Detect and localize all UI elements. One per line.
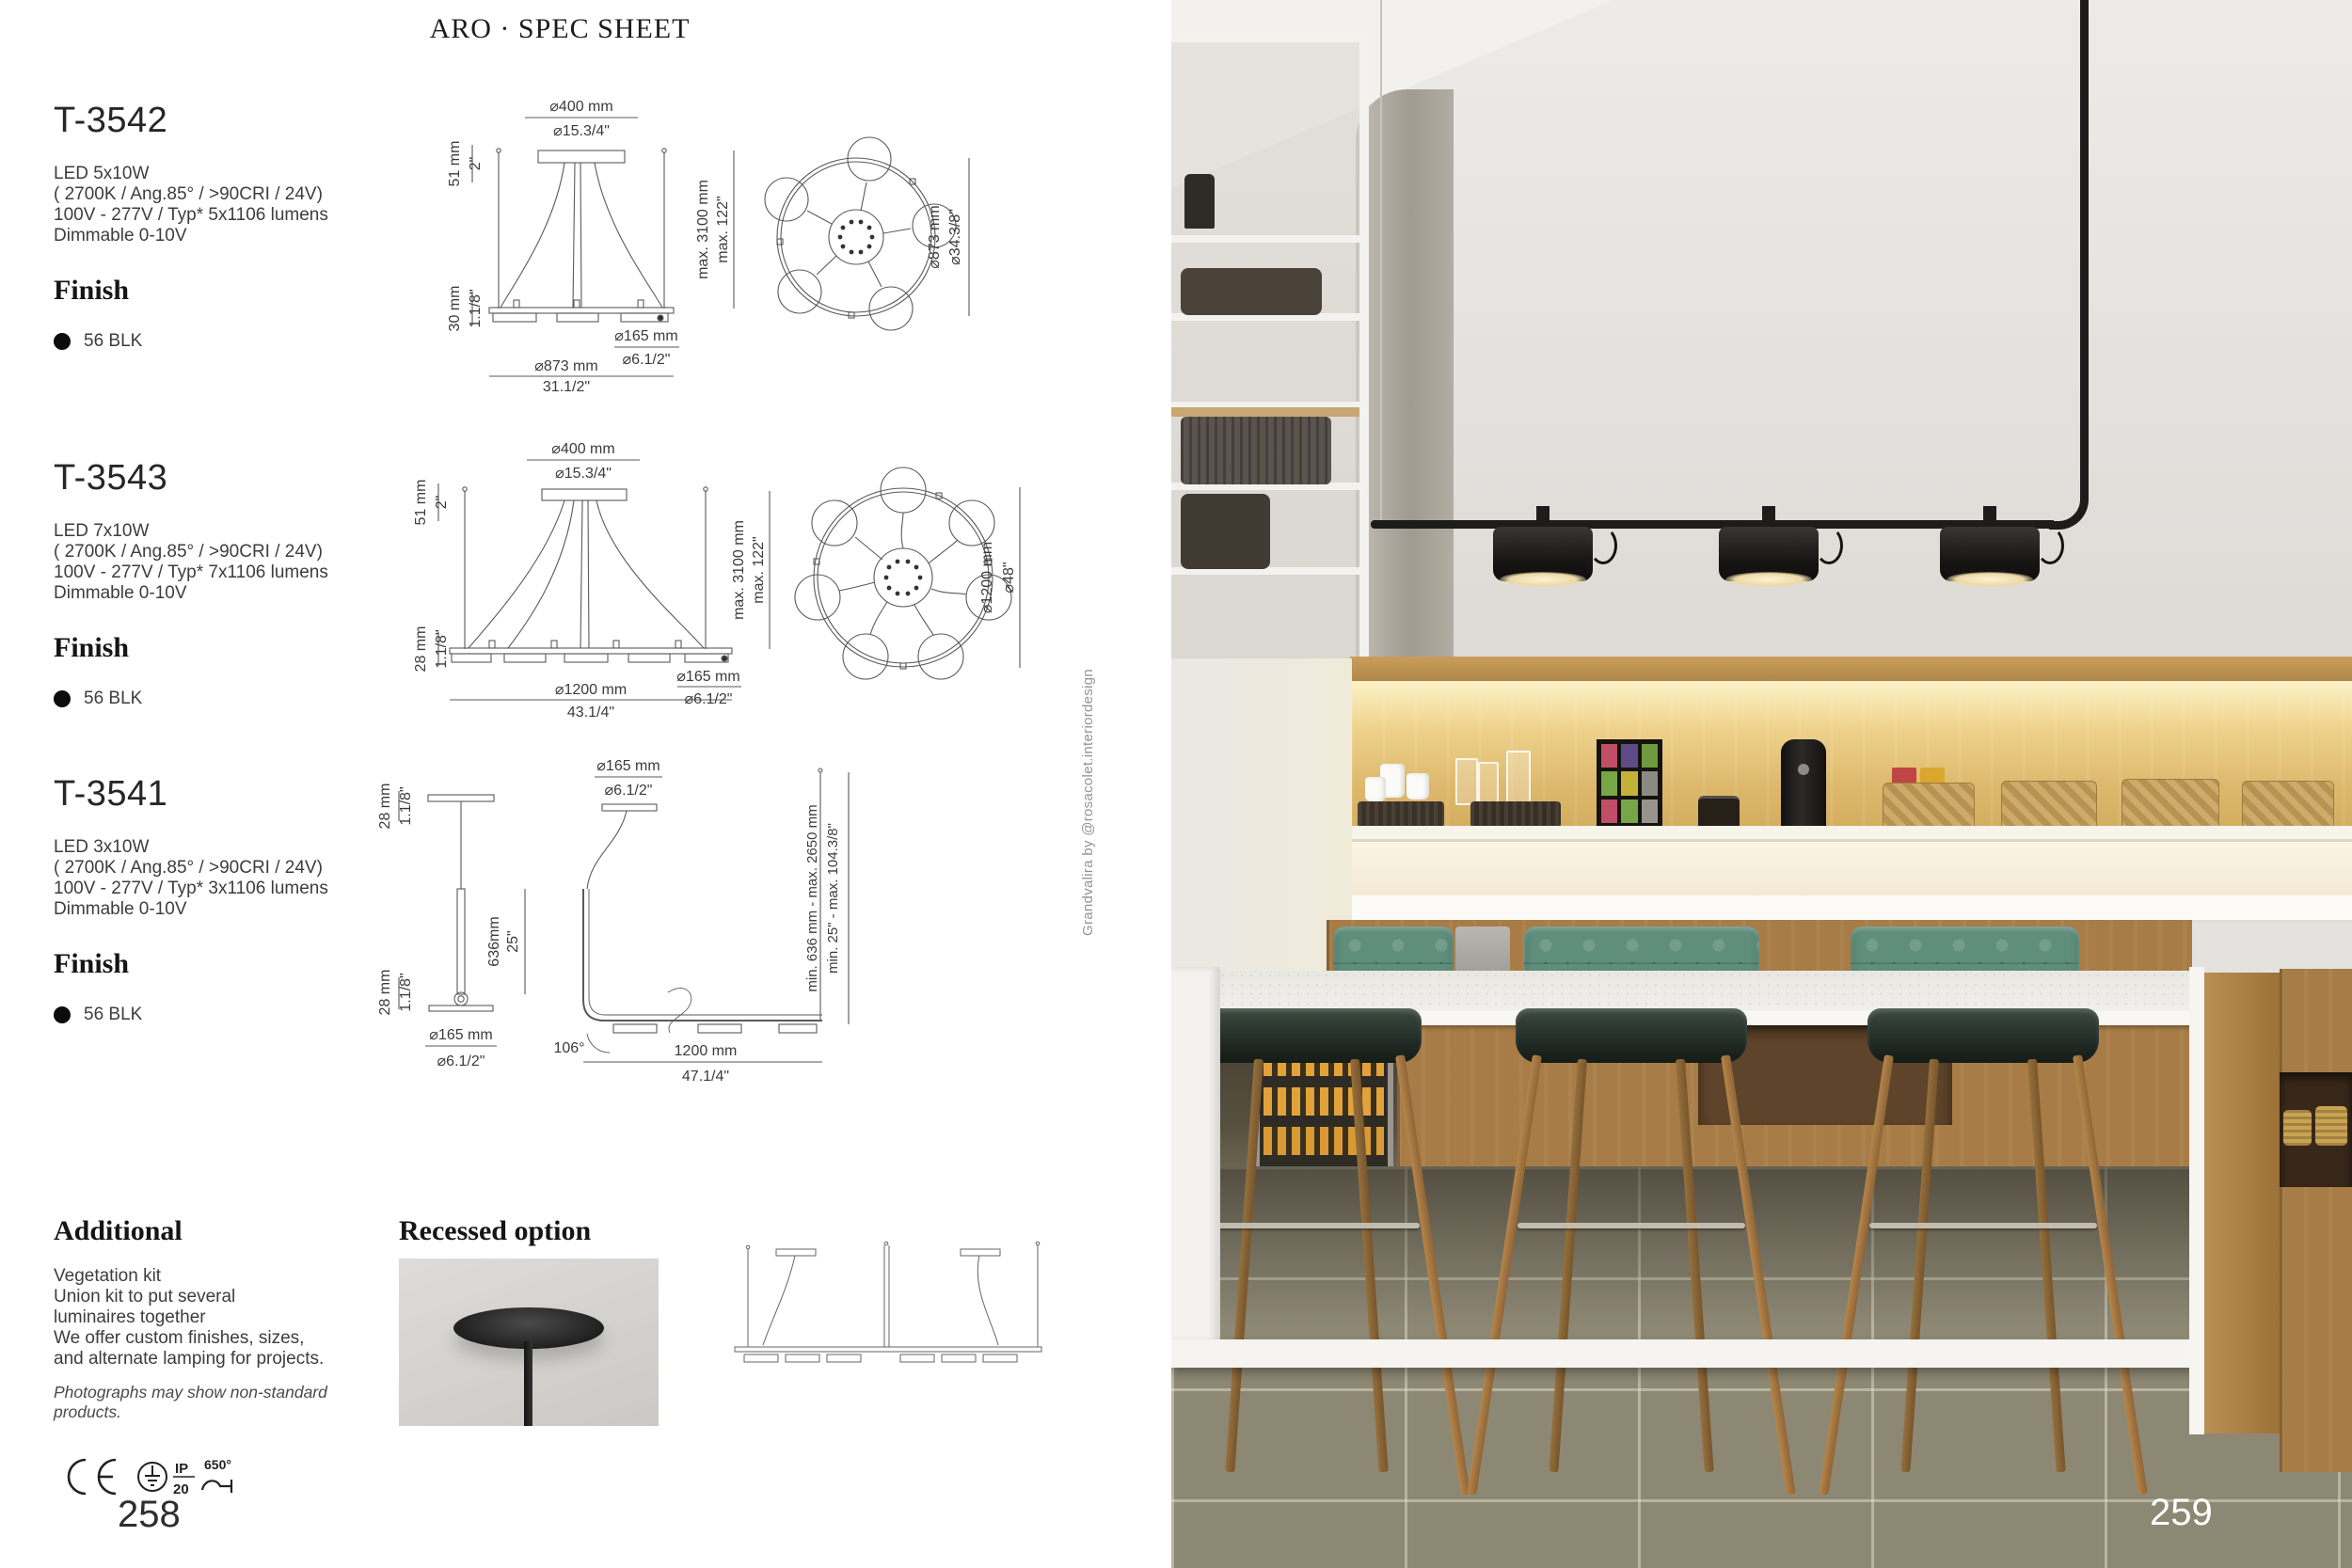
additional-line: and alternate lamping for projects. (54, 1349, 364, 1370)
model-number: T-3541 (54, 775, 373, 813)
black-swatch-dot (54, 1006, 71, 1023)
stool-footrest (1518, 1223, 1745, 1228)
finish-heading: Finish (54, 632, 373, 664)
display-shelf-board (1350, 826, 2352, 842)
stool-footrest (1194, 1223, 1420, 1228)
vase (1184, 174, 1215, 229)
concrete-pillar (1356, 89, 1454, 668)
spec-line: Dimmable 0-10V (54, 583, 373, 604)
tea-card (1621, 800, 1637, 823)
spec-line: LED 5x10W (54, 164, 373, 184)
plan-led-dots (838, 220, 875, 255)
stool-seat (1192, 1008, 1422, 1063)
pendant-vertical-rod (2080, 0, 2089, 497)
earth-ground-icon (138, 1463, 167, 1491)
dim-drop-in: max. 122" (751, 536, 767, 604)
dim-head-mm: ⌀165 mm (429, 1027, 492, 1043)
dim-drop-mm: min. 636 mm - max. 2650 mm (804, 804, 820, 991)
product-block-t3542: T-3542 LED 5x10W ( 2700K / Ang.85° / >90… (54, 102, 373, 352)
spec-lines: LED 5x10W ( 2700K / Ang.85° / >90CRI / 2… (54, 164, 373, 246)
wicker-basket (2242, 781, 2334, 832)
swatch-label: 56 BLK (84, 1005, 142, 1025)
lamp-head-mount (1983, 506, 1996, 525)
lamp-head-cable-loop (2036, 527, 2064, 564)
additional-heading: Additional (54, 1215, 364, 1247)
dim-body-h-in: 1.1/8" (468, 289, 484, 327)
dim-canopy-mm: ⌀400 mm (551, 441, 614, 457)
bar-stool (1867, 1008, 2099, 1516)
right-page-number: 259 (2150, 1492, 2213, 1534)
folded-textiles (1181, 268, 1322, 315)
dim-plan-mm: ⌀873 mm (927, 205, 943, 268)
wood-end-panel (2204, 973, 2280, 1433)
dim-body-h-mm: 28 mm (377, 970, 393, 1016)
dim-width-in: 31.1/2" (543, 379, 590, 395)
stool-seat (1867, 1008, 2099, 1063)
dim-width-mm: ⌀873 mm (534, 358, 597, 374)
dim-drop-mm: max. 3100 mm (731, 520, 747, 620)
lamp-head-mount (1762, 506, 1775, 525)
spec-line: 100V - 277V / Typ* 7x1106 lumens (54, 562, 373, 583)
black-swatch-dot (54, 690, 71, 707)
lamp-head-cable-loop (1815, 527, 1843, 564)
dim-canopy-h-mm: 51 mm (413, 480, 429, 526)
white-mug (1365, 777, 1386, 801)
dimension-drawing-t3542: ⌀400 mm ⌀15.3/4" 51 mm 2" 30 mm 1.1/8" m… (423, 96, 988, 395)
dimension-drawing-t3541: 28 mm 1.1/8" 28 mm 1.1/8" 636mm 25" ⌀165… (376, 757, 875, 1086)
stool-leg (1676, 1059, 1714, 1473)
stool-leg (1350, 1059, 1389, 1473)
union-kit-lines (735, 1242, 1041, 1362)
t3543-side-view (438, 460, 770, 700)
additional-line: We offer custom finishes, sizes, (54, 1328, 364, 1349)
tea-card (1601, 771, 1617, 795)
woven-basket (1181, 417, 1331, 484)
recessed-canopy-photo (399, 1259, 659, 1426)
dim-body-h-mm: 28 mm (413, 626, 429, 673)
right-cabinet (2280, 969, 2352, 1472)
dim-angle: 106° (553, 1040, 584, 1056)
dim-stem-in: 25" (505, 930, 521, 952)
finish-heading: Finish (54, 948, 373, 980)
left-page-number: 258 (118, 1494, 181, 1536)
spec-line: LED 3x10W (54, 837, 373, 858)
wicker-basket (2122, 779, 2219, 832)
swatch-label: 56 BLK (84, 331, 142, 352)
white-mug (1406, 773, 1429, 800)
product-block-t3541: T-3541 LED 3x10W ( 2700K / Ang.85° / >90… (54, 775, 373, 1025)
additional-section: Additional Vegetation kit Union kit to p… (54, 1215, 364, 1508)
glass (1506, 751, 1531, 805)
model-number: T-3543 (54, 459, 373, 497)
counter-top (1350, 842, 2352, 898)
ip20-icon: IP 20 (173, 1461, 195, 1497)
ce-mark-icon (69, 1460, 116, 1494)
dim-stem-mm: 636mm (486, 916, 502, 966)
dim-canopy-in: ⌀15.3/4" (553, 123, 610, 139)
tea-card (1642, 800, 1658, 823)
photo-disclaimer-note: Photographs may show non-standard produc… (54, 1383, 364, 1422)
stool-leg (1900, 1059, 1939, 1473)
spec-lines: LED 7x10W ( 2700K / Ang.85° / >90CRI / 2… (54, 521, 373, 604)
finish-swatch-row: 56 BLK (54, 689, 373, 709)
tea-display-box (1597, 739, 1662, 828)
table-side-panel (1171, 967, 1220, 1366)
glow-temp-label: 650° (204, 1457, 231, 1472)
dim-width-in: 47.1/4" (682, 1069, 729, 1085)
dim-drop-in: max. 122" (715, 196, 731, 263)
t3541-stem-view (399, 791, 525, 1046)
additional-line: luminaires together (54, 1307, 364, 1328)
tea-card (1601, 800, 1617, 823)
wicker-basket (1883, 783, 1975, 832)
glass (1478, 762, 1499, 805)
stool-footrest (1869, 1223, 2097, 1228)
dark-basket (1470, 801, 1561, 828)
glass (1455, 758, 1478, 805)
shelf (1171, 235, 1359, 243)
model-number: T-3542 (54, 102, 373, 139)
dim-drop-in: min. 25" - max. 104.3/8" (825, 823, 841, 974)
tea-card (1601, 744, 1617, 768)
photo-credit: Grandvalira by @rosacolet.interiordesign (1080, 654, 1103, 936)
left-lower-wall (1171, 658, 1352, 978)
lamp-head-cable-loop (1589, 527, 1617, 564)
spec-line: ( 2700K / Ang.85° / >90CRI / 24V) (54, 184, 373, 205)
niche-top-rail (1350, 657, 2352, 681)
shelving-unit (1171, 33, 1369, 668)
dim-head-mm: ⌀165 mm (614, 328, 677, 344)
dim-head-in: ⌀6.1/2" (623, 352, 671, 368)
dim-plan-mm: ⌀1200 mm (979, 542, 995, 613)
dim-canopy-h-in: 2" (434, 496, 450, 510)
product-block-t3543: T-3543 LED 7x10W ( 2700K / Ang.85° / >90… (54, 459, 373, 709)
lamp-glow (1725, 572, 1812, 587)
spec-line: Dimmable 0-10V (54, 226, 373, 246)
stool-seat (1516, 1008, 1747, 1063)
lamp-head-mount (1536, 506, 1549, 525)
bar-stool (1516, 1008, 1747, 1516)
catalog-spread: ARO · SPEC SHEET T-3542 LED 5x10W ( 2700… (0, 0, 2352, 1568)
dark-stack (1181, 494, 1270, 569)
dim-canopy-h-mm: 51 mm (447, 141, 463, 187)
black-swatch-dot (54, 333, 71, 350)
dim-head-mm: ⌀165 mm (676, 669, 739, 685)
additional-line: Union kit to put several (54, 1287, 364, 1307)
recessed-heading: Recessed option (399, 1215, 591, 1247)
gold-basket (2283, 1110, 2312, 1146)
dim-head-in: ⌀6.1/2" (437, 1053, 485, 1069)
dim-body-h-in: 1.1/8" (398, 973, 414, 1011)
dim-canopy-h-mm: 28 mm (377, 784, 393, 830)
wood-shelf-board (1171, 407, 1359, 417)
swatch-label: 56 BLK (84, 689, 142, 709)
table-end-white-edge (2189, 967, 2204, 1434)
spec-lines: LED 3x10W ( 2700K / Ang.85° / >90CRI / 2… (54, 837, 373, 920)
pendant-suspension-cable (1380, 0, 1382, 523)
dim-canopy-h-in: 1.1/8" (398, 786, 414, 825)
finish-heading: Finish (54, 275, 373, 307)
dim-width-in: 43.1/4" (567, 705, 614, 721)
glow-wire-650-icon: 650° (202, 1457, 231, 1493)
interior-photo (1171, 0, 2352, 1568)
spec-line: ( 2700K / Ang.85° / >90CRI / 24V) (54, 858, 373, 879)
dim-plan-in: ⌀48" (1001, 562, 1017, 593)
dim-plan-in: ⌀34.3/8" (947, 209, 963, 265)
lamp-glow (1500, 572, 1586, 587)
additional-line: Vegetation kit (54, 1266, 364, 1287)
finish-swatch-row: 56 BLK (54, 331, 373, 352)
wicker-basket (2001, 781, 2097, 832)
recessed-drop-rod (524, 1341, 532, 1426)
spec-line: 100V - 277V / Typ* 5x1106 lumens (54, 205, 373, 226)
dim-head-in: ⌀6.1/2" (685, 691, 733, 707)
dim-body-h-in: 1.1/8" (434, 629, 450, 668)
stool-leg (1549, 1059, 1587, 1473)
bar-stool (1192, 1008, 1422, 1516)
dimension-drawing-t3543: ⌀400 mm ⌀15.3/4" 51 mm 2" 28 mm 1.1/8" m… (395, 440, 1035, 722)
additional-lines: Vegetation kit Union kit to put several … (54, 1266, 364, 1370)
counter-front-edge (1350, 895, 2352, 922)
spec-line: 100V - 277V / Typ* 3x1106 lumens (54, 879, 373, 899)
stool-leg (2027, 1059, 2066, 1473)
gold-basket (2315, 1106, 2347, 1146)
dark-basket (1358, 801, 1444, 828)
ip-label: IP (175, 1461, 188, 1477)
finish-swatch-row: 56 BLK (54, 1005, 373, 1025)
dim-canopy-in: ⌀15.3/4" (555, 466, 612, 482)
lamp-glow (1947, 572, 2033, 587)
page-title: ARO · SPEC SHEET (0, 13, 1120, 45)
dim-width-mm: 1200 mm (675, 1043, 738, 1059)
plan-led-dots (884, 560, 923, 596)
spec-line: Dimmable 0-10V (54, 899, 373, 920)
recessed-option-section: Recessed option (399, 1215, 591, 1247)
table-bottom-rail (1171, 1339, 2199, 1368)
spec-line: ( 2700K / Ang.85° / >90CRI / 24V) (54, 542, 373, 562)
dim-drop-mm: max. 3100 mm (695, 180, 711, 279)
dim-canopy-h-in: 2" (468, 157, 484, 171)
dim-canopy-mm: ⌀400 mm (549, 99, 612, 115)
dim-body-h-mm: 30 mm (447, 286, 463, 332)
spec-line: LED 7x10W (54, 521, 373, 542)
stool-leg (1225, 1059, 1263, 1473)
coffee-machine (1781, 739, 1826, 830)
dim-width-mm: ⌀1200 mm (555, 682, 627, 698)
tea-card (1642, 771, 1658, 795)
tea-card (1621, 744, 1637, 768)
tea-card (1642, 744, 1658, 768)
union-kit-drawing (720, 1238, 1063, 1407)
dim-canopy-in: ⌀6.1/2" (605, 783, 653, 799)
tea-card (1621, 771, 1637, 795)
machine-button (1798, 764, 1809, 775)
dim-canopy-mm: ⌀165 mm (596, 758, 660, 774)
